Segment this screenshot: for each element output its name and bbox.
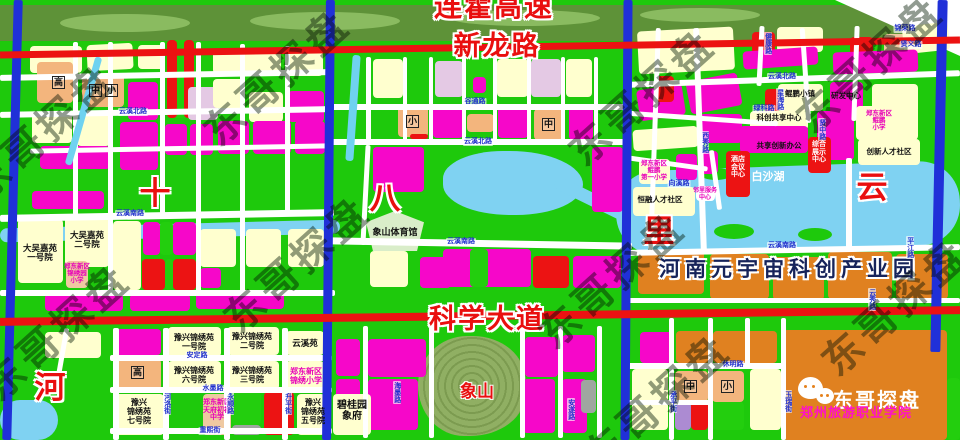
- road-label: 安定路: [186, 352, 209, 360]
- road-label: 升平街: [284, 392, 292, 415]
- road-label: 安遂路: [567, 398, 575, 421]
- road-label: 河洛街: [163, 392, 171, 415]
- area-label: 碧桂园 象府: [337, 400, 367, 422]
- parcel: [200, 229, 236, 267]
- parcel: [116, 329, 161, 355]
- road: [366, 57, 371, 142]
- hill-label: 象山: [460, 383, 494, 402]
- parcel: [523, 379, 555, 433]
- road-label: 谷通路: [464, 98, 487, 106]
- road: [163, 328, 169, 440]
- area-label: 豫兴锦绣苑 三号院: [232, 367, 272, 385]
- parcel: [160, 222, 173, 255]
- district-char: 云: [857, 162, 888, 207]
- road: [745, 318, 750, 366]
- road: [110, 355, 332, 361]
- parcel: [470, 249, 488, 287]
- parcel: [497, 59, 528, 97]
- parcel: [143, 222, 160, 255]
- road: [224, 328, 230, 440]
- parcel: [498, 107, 528, 138]
- area-label: 酒店 会议 中心: [731, 156, 745, 179]
- parcel: [295, 121, 325, 154]
- road: [527, 57, 531, 142]
- parcel: [130, 294, 190, 311]
- road-label: 水墨路: [202, 385, 225, 393]
- area-label: 大吴嘉苑 一号院: [23, 244, 57, 263]
- parcel: [433, 106, 463, 138]
- college-label: 郑州旅游职业学院: [800, 402, 912, 421]
- area-label: 白沙湖: [752, 171, 785, 183]
- area-label: 邻里服务 中心: [693, 188, 717, 201]
- road-label: 云溪南路: [767, 242, 797, 250]
- parcel: [336, 339, 360, 376]
- district-char: 十: [140, 168, 171, 213]
- parcel: [370, 251, 408, 287]
- area-label: 云溪苑: [292, 339, 318, 348]
- parcel: [173, 222, 196, 255]
- road-label: 云溪南路: [446, 238, 476, 246]
- road: [429, 326, 434, 438]
- school-mark: 小: [721, 380, 734, 393]
- parcel: [712, 402, 744, 430]
- road: [429, 57, 433, 142]
- district-char: 八: [370, 173, 401, 218]
- road-label: 玉瑞街: [784, 390, 792, 413]
- road: [196, 42, 201, 292]
- area-label: 郑东新区 鲲鹏 小学: [866, 110, 892, 131]
- school-mark: 小: [406, 115, 419, 128]
- road: [493, 57, 497, 142]
- road-label: 健康路: [764, 32, 772, 55]
- road-label: 绿科路: [753, 105, 776, 113]
- parcel: [232, 392, 261, 425]
- road-label: 向溪路: [668, 180, 691, 188]
- road-label: 重熙街: [199, 427, 222, 435]
- parcel: [368, 339, 426, 377]
- parcel: [750, 369, 781, 430]
- parcel: [435, 61, 463, 97]
- school-mark: 高: [131, 366, 144, 379]
- road-label: 海墨路: [393, 381, 401, 404]
- parcel: [691, 402, 708, 430]
- gym-label: 象山体育馆: [372, 228, 417, 238]
- lake-island: [714, 224, 754, 239]
- road: [282, 328, 288, 440]
- road: [113, 328, 119, 440]
- road-label: 云溪北路: [118, 108, 148, 116]
- area-label: 综合 展示 中心: [812, 141, 826, 164]
- parcel: [32, 191, 104, 209]
- area-label: 豫兴锦绣苑 六号院: [174, 367, 214, 385]
- area-label: 郑东新区 锦绣小学: [290, 368, 322, 386]
- road: [520, 326, 525, 438]
- parcel: [142, 259, 165, 290]
- road-label: 云溪北路: [463, 138, 493, 146]
- parcel: [467, 114, 494, 132]
- parcel: [947, 378, 960, 440]
- parcel: [173, 259, 196, 290]
- road: [781, 318, 786, 440]
- area-label: 豫兴锦绣苑 一号院: [174, 334, 214, 352]
- road: [403, 57, 407, 142]
- parcel: [473, 77, 486, 93]
- parcel: [200, 268, 221, 288]
- highway-lane: [640, 8, 760, 22]
- parcel: [566, 59, 592, 97]
- parcel: [373, 59, 403, 98]
- area-label: 大吴嘉苑 二号院: [70, 231, 104, 250]
- school-mark: 中: [542, 118, 555, 131]
- area-label: 郑东新区 鲲鹏 第一小学: [641, 160, 667, 181]
- area-label: 豫兴 锦绣苑 五号院: [301, 399, 325, 425]
- parcel: [165, 259, 173, 290]
- area-label: 共享创新办公: [757, 142, 802, 150]
- road-label: 永顺路: [226, 392, 234, 415]
- road: [846, 158, 852, 250]
- road-banner: 新龙路: [454, 24, 541, 63]
- road-banner: 连霍高速: [434, 0, 554, 25]
- parcel: [531, 59, 561, 97]
- road-label: 西秀路: [701, 131, 709, 154]
- area-label: 豫兴 锦绣苑 七号院: [127, 399, 151, 425]
- lake-island: [798, 228, 832, 241]
- road-label: 云溪北路: [767, 73, 797, 81]
- planning-map: 高中小小中高中小大吴嘉苑 一号院大吴嘉苑 二号院豫兴锦绣苑 一号院豫兴锦绣苑 二…: [0, 0, 960, 440]
- highway-lane: [60, 14, 190, 32]
- parcel: [581, 380, 596, 413]
- area-label: 创新人才社区: [867, 148, 912, 156]
